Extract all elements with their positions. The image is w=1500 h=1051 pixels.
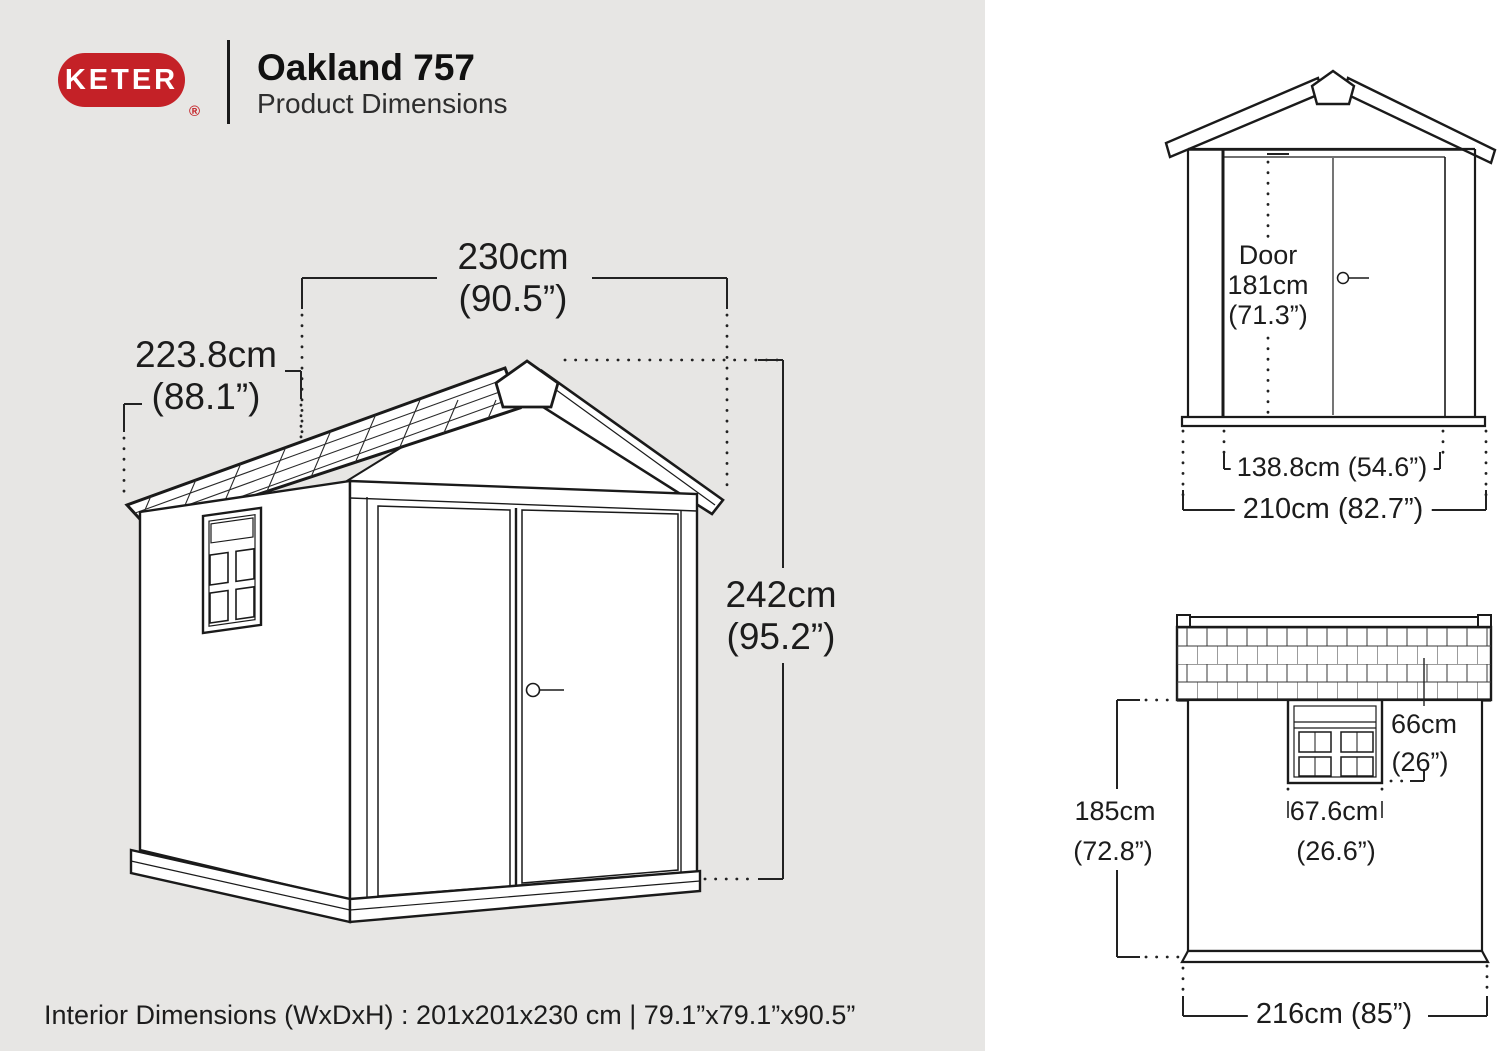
side-base-plate — [1182, 951, 1488, 962]
front-base — [1182, 417, 1485, 426]
line-art — [0, 0, 1500, 1051]
side-window — [203, 508, 261, 633]
door-label-line2: 181cm — [1227, 271, 1308, 299]
main-depth-label-cm: 223.8cm — [135, 336, 277, 375]
main-height-label-in: (95.2”) — [727, 618, 836, 657]
main-shed-drawing — [127, 361, 723, 922]
door-label-line3: (71.3”) — [1228, 301, 1308, 329]
door-label-line1: Door — [1239, 241, 1298, 269]
main-depth-label-in: (88.1”) — [152, 378, 261, 417]
front-elevation — [1166, 71, 1495, 426]
header-divider — [227, 40, 230, 124]
main-width-label-in: (90.5”) — [459, 280, 568, 319]
ridge-bar — [1188, 617, 1478, 627]
front-apex-cap — [1312, 71, 1354, 104]
window-width-label-in: (26.6”) — [1296, 837, 1376, 865]
registered-trademark-icon: ® — [189, 103, 200, 120]
side-window-2d — [1288, 700, 1382, 783]
overall-width-label: 210cm (82.7”) — [1235, 494, 1432, 524]
keter-logo: KETER — [58, 53, 185, 107]
wall-height-label-cm: 185cm — [1074, 797, 1155, 825]
door-width-label: 138.8cm (54.6”) — [1231, 453, 1434, 481]
front-wall — [350, 481, 697, 900]
product-dimensions-sheet: KETER ® Oakland 757 Product Dimensions 2… — [0, 0, 1500, 1051]
interior-dimensions-text: Interior Dimensions (WxDxH) : 201x201x23… — [44, 1000, 855, 1031]
window-height-label-cm: 66cm — [1391, 710, 1457, 738]
main-height-label-cm: 242cm — [725, 576, 836, 615]
window-width-label-cm: 67.6cm — [1290, 797, 1379, 825]
overall-depth-label: 216cm (85”) — [1248, 999, 1420, 1029]
keter-logo-text: KETER — [65, 64, 178, 97]
front-door-handle — [1338, 273, 1370, 284]
main-width-label-cm: 230cm — [457, 238, 568, 277]
page-title: Oakland 757 — [257, 47, 475, 89]
page-subtitle: Product Dimensions — [257, 88, 508, 120]
wall-height-label-in: (72.8”) — [1073, 837, 1153, 865]
side-elevation — [1177, 615, 1491, 962]
window-height-label-in: (26”) — [1391, 748, 1448, 776]
